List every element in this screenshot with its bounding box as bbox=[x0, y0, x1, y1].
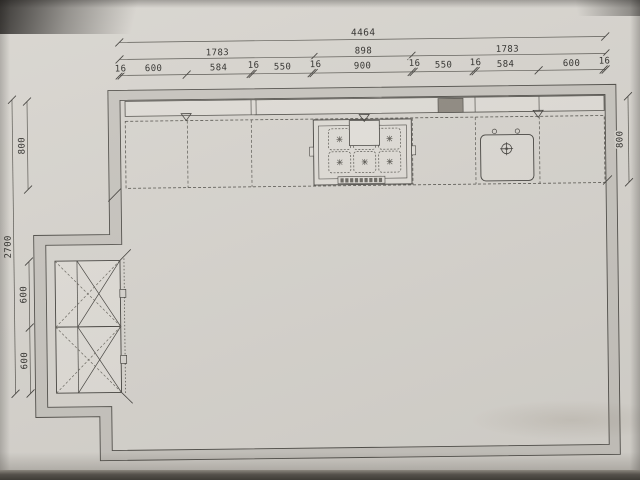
dim-row2-1: 898 bbox=[355, 46, 373, 56]
sink bbox=[480, 129, 534, 181]
dim-left-seg-2: 600 bbox=[20, 352, 30, 370]
dim-row3-0: 16 bbox=[115, 64, 127, 74]
sink-bowl bbox=[480, 134, 534, 181]
dim-top-overall: 4464 bbox=[351, 27, 376, 38]
dim-row3-6: 900 bbox=[354, 61, 372, 71]
dim-right-depth: 800 bbox=[615, 131, 625, 149]
cooktop-side-tab-left bbox=[310, 147, 314, 156]
dim-row3-3: 16 bbox=[248, 61, 260, 71]
hinge-mark bbox=[121, 355, 127, 363]
dim-row3-1: 600 bbox=[145, 64, 163, 74]
dark-appliance-box bbox=[438, 98, 463, 112]
plan-svg: 4464 1783 898 1783 16 600 584 16 550 16 … bbox=[0, 0, 640, 480]
cooktop-side-tab-right bbox=[412, 146, 416, 155]
dim-left-overall: 2700 bbox=[4, 235, 14, 258]
cooktop bbox=[309, 119, 416, 185]
dim-row3-2: 584 bbox=[210, 63, 228, 73]
extractor-canopy bbox=[349, 120, 379, 145]
dim-row3-9: 16 bbox=[470, 58, 482, 68]
dim-row3-10: 584 bbox=[497, 60, 515, 70]
hinge-mark bbox=[120, 289, 126, 297]
tall-cabinets bbox=[55, 258, 127, 395]
dim-left-seg-1: 600 bbox=[19, 286, 29, 304]
alcove-front-line bbox=[124, 258, 126, 394]
dim-left-seg-0: 800 bbox=[17, 137, 27, 155]
photographed-plan-sheet: 4464 1783 898 1783 16 600 584 16 550 16 … bbox=[0, 0, 640, 480]
cad-drawing: 4464 1783 898 1783 16 600 584 16 550 16 … bbox=[0, 0, 640, 480]
dim-row2-2: 1783 bbox=[496, 45, 519, 55]
dim-row3-4: 550 bbox=[274, 62, 292, 72]
dim-row2-0: 1783 bbox=[206, 48, 229, 58]
dim-row3-5: 16 bbox=[310, 60, 322, 70]
dim-row3-8: 550 bbox=[435, 60, 453, 70]
dim-row3-11: 600 bbox=[563, 59, 581, 69]
knob-strip bbox=[338, 176, 385, 184]
tap-hole bbox=[492, 129, 496, 133]
tap-hole bbox=[515, 129, 519, 133]
dim-row3-12: 16 bbox=[599, 56, 611, 66]
dim-row3-7: 16 bbox=[409, 59, 421, 69]
leader-ticks bbox=[108, 175, 615, 403]
